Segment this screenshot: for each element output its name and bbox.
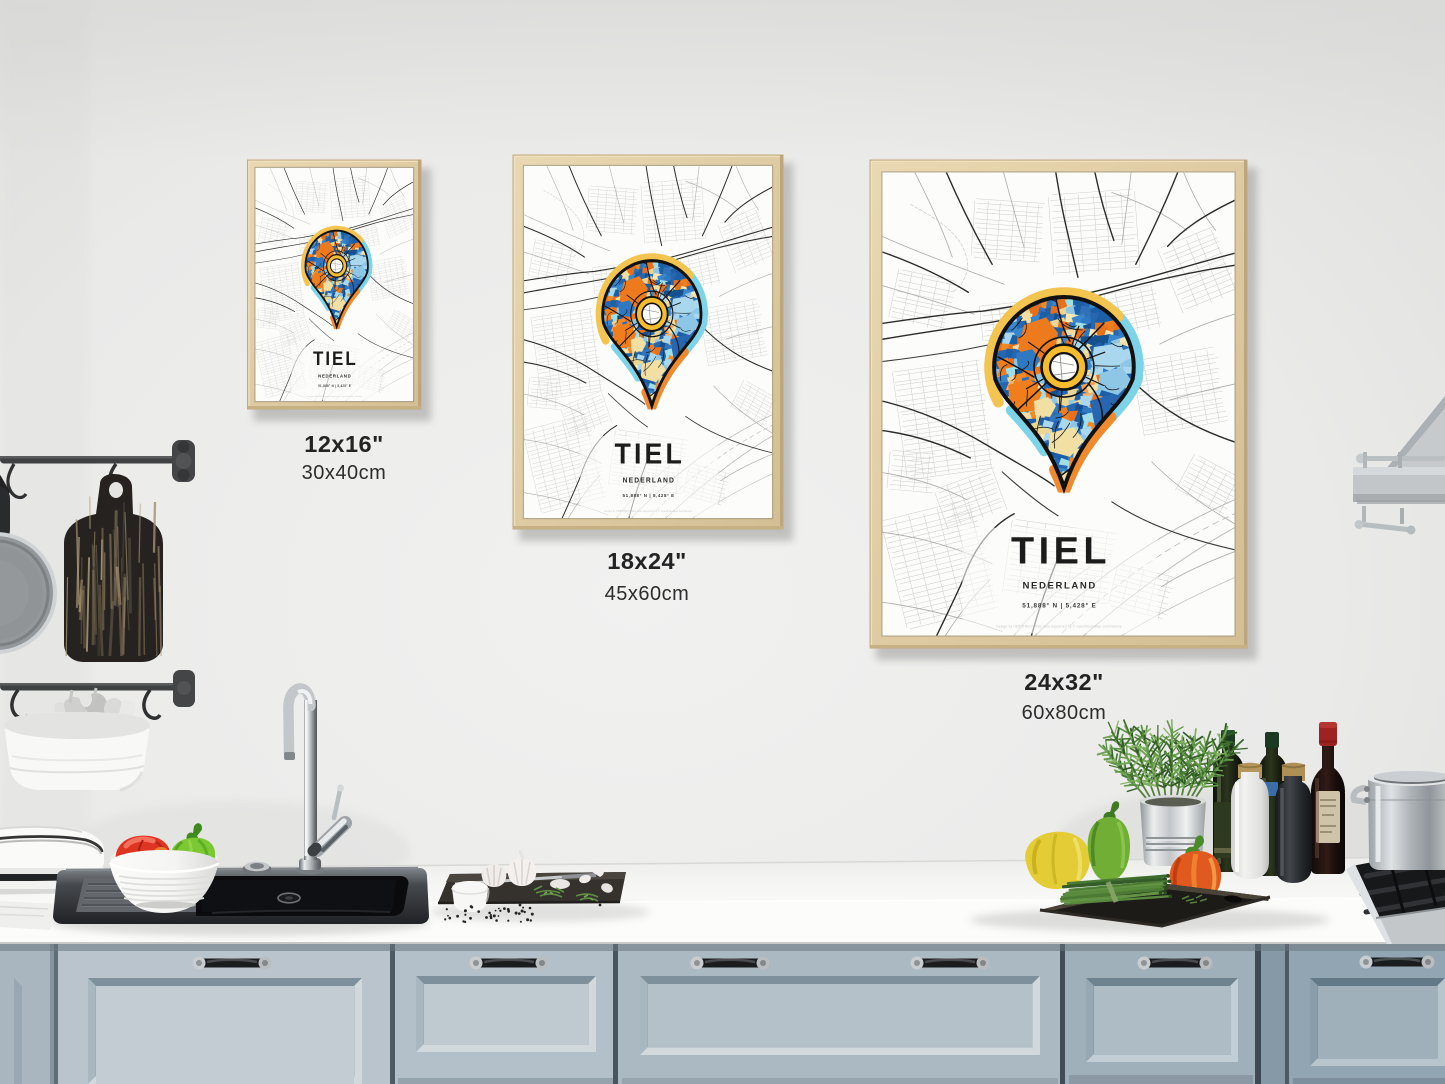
svg-text:60x80cm: 60x80cm <box>1022 702 1107 724</box>
svg-text:30x40cm: 30x40cm <box>302 462 387 484</box>
svg-text:24x32": 24x32" <box>1024 669 1104 695</box>
svg-text:45x60cm: 45x60cm <box>605 583 690 605</box>
svg-text:12x16": 12x16" <box>304 431 384 457</box>
svg-text:18x24": 18x24" <box>607 548 687 574</box>
